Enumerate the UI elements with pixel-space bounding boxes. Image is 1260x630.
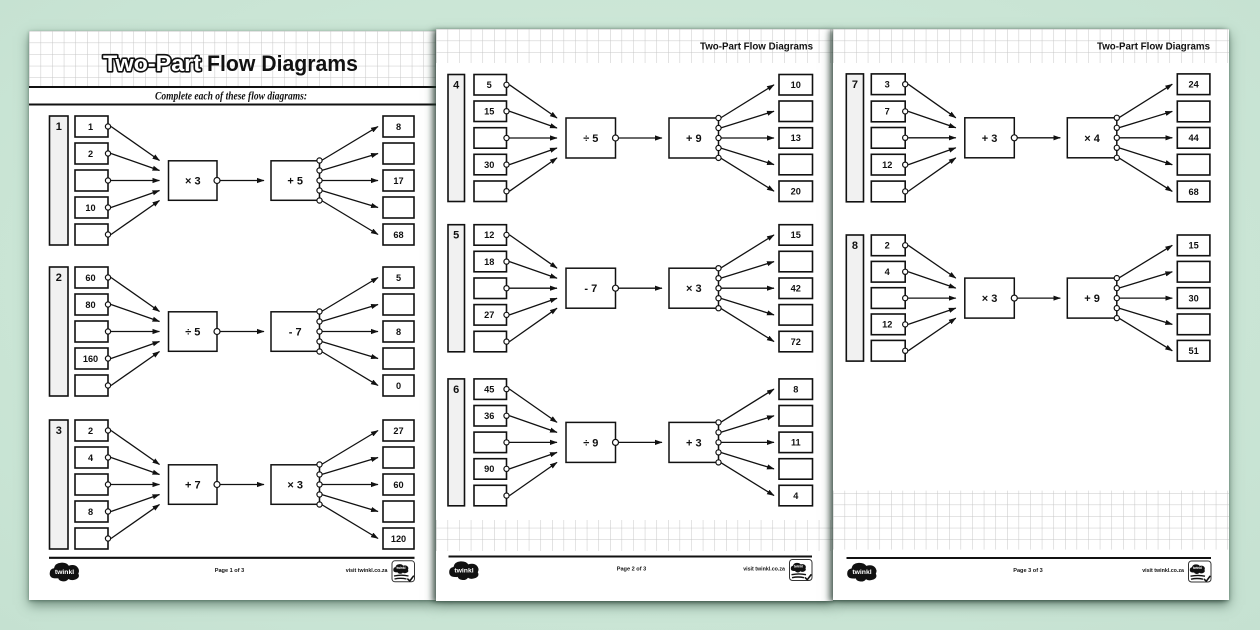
- svg-text:8: 8: [88, 507, 93, 517]
- svg-text:Two-Part Flow Diagrams: Two-Part Flow Diagrams: [700, 41, 813, 53]
- svg-text:twinkl: twinkl: [55, 569, 74, 576]
- svg-text:5: 5: [487, 80, 492, 90]
- svg-text:51: 51: [1188, 346, 1198, 356]
- svg-text:90: 90: [484, 464, 494, 474]
- svg-text:8: 8: [396, 327, 401, 337]
- svg-text:4: 4: [793, 491, 799, 501]
- svg-text:12: 12: [484, 230, 494, 240]
- svg-text:Flow Diagrams: Flow Diagrams: [207, 51, 358, 76]
- svg-text:11: 11: [791, 438, 801, 448]
- svg-text:24: 24: [1188, 80, 1199, 90]
- svg-text:visit twinkl.co.za: visit twinkl.co.za: [743, 567, 785, 573]
- svg-text:× 4: × 4: [1084, 133, 1100, 145]
- svg-text:17: 17: [393, 176, 403, 186]
- svg-text:2: 2: [88, 426, 93, 436]
- svg-text:15: 15: [1188, 241, 1198, 251]
- svg-text:+ 5: + 5: [287, 176, 303, 188]
- svg-text:80: 80: [85, 300, 95, 310]
- svg-text:8: 8: [793, 384, 798, 394]
- svg-text:× 3: × 3: [185, 176, 201, 188]
- svg-text:42: 42: [791, 284, 801, 294]
- svg-text:÷ 9: ÷ 9: [583, 437, 598, 449]
- svg-text:5: 5: [396, 273, 401, 283]
- svg-text:× 3: × 3: [287, 480, 303, 492]
- svg-text:twinkl: twinkl: [1193, 566, 1202, 570]
- svg-text:- 7: - 7: [584, 283, 597, 295]
- svg-text:12: 12: [882, 320, 892, 330]
- svg-text:Page 1 of 3: Page 1 of 3: [215, 568, 245, 574]
- svg-text:7: 7: [852, 79, 858, 91]
- svg-text:4: 4: [88, 453, 94, 463]
- svg-text:12: 12: [882, 160, 892, 170]
- svg-text:visit twinkl.co.za: visit twinkl.co.za: [1142, 568, 1184, 574]
- svg-text:8: 8: [852, 240, 858, 252]
- svg-text:120: 120: [391, 534, 406, 544]
- svg-text:+ 3: + 3: [982, 133, 998, 145]
- svg-text:60: 60: [393, 480, 403, 490]
- svg-text:30: 30: [484, 160, 494, 170]
- svg-text:Complete each of these flow di: Complete each of these flow diagrams:: [155, 91, 307, 103]
- svg-text:36: 36: [484, 411, 494, 421]
- svg-text:+ 7: + 7: [185, 480, 201, 492]
- svg-text:4: 4: [885, 267, 891, 277]
- svg-text:72: 72: [791, 337, 801, 347]
- svg-text:twinkl: twinkl: [396, 566, 405, 570]
- svg-text:6: 6: [453, 384, 459, 396]
- svg-text:45: 45: [484, 384, 494, 394]
- svg-text:Page 3 of 3: Page 3 of 3: [1013, 568, 1043, 574]
- svg-text:68: 68: [393, 230, 403, 240]
- svg-text:+ 3: + 3: [686, 437, 702, 449]
- svg-text:twinkl: twinkl: [794, 565, 803, 569]
- svg-text:44: 44: [1188, 133, 1199, 143]
- svg-text:+ 9: + 9: [1084, 293, 1100, 305]
- svg-text:5: 5: [453, 230, 459, 242]
- svg-text:- 7: - 7: [289, 327, 302, 339]
- svg-text:160: 160: [83, 354, 98, 364]
- svg-text:twinkl: twinkl: [454, 568, 473, 575]
- svg-text:2: 2: [56, 272, 62, 284]
- svg-text:10: 10: [85, 203, 95, 213]
- svg-text:15: 15: [791, 230, 801, 240]
- svg-text:+ 9: + 9: [686, 133, 702, 145]
- svg-text:twinkl: twinkl: [852, 569, 871, 576]
- svg-text:15: 15: [484, 107, 494, 117]
- svg-text:30: 30: [1188, 293, 1198, 303]
- svg-text:8: 8: [396, 122, 401, 132]
- svg-text:68: 68: [1188, 187, 1198, 197]
- svg-text:2: 2: [88, 149, 93, 159]
- svg-text:2: 2: [885, 241, 890, 251]
- svg-text:× 3: × 3: [982, 293, 998, 305]
- svg-text:27: 27: [393, 426, 403, 436]
- svg-text:20: 20: [791, 187, 801, 197]
- svg-text:3: 3: [56, 425, 62, 437]
- svg-text:60: 60: [85, 273, 95, 283]
- svg-text:Page 2 of 3: Page 2 of 3: [617, 567, 647, 573]
- svg-text:13: 13: [791, 133, 801, 143]
- svg-text:27: 27: [484, 310, 494, 320]
- svg-text:18: 18: [484, 257, 494, 267]
- svg-text:3: 3: [885, 80, 890, 90]
- svg-text:visit twinkl.co.za: visit twinkl.co.za: [346, 568, 388, 574]
- svg-text:× 3: × 3: [686, 283, 702, 295]
- svg-text:÷ 5: ÷ 5: [185, 327, 200, 339]
- svg-text:Two-Part Flow Diagrams: Two-Part Flow Diagrams: [1097, 41, 1210, 53]
- svg-text:÷ 5: ÷ 5: [583, 133, 598, 145]
- svg-text:7: 7: [885, 107, 890, 117]
- svg-text:4: 4: [453, 80, 460, 92]
- svg-text:1: 1: [88, 122, 93, 132]
- svg-text:Two-Part: Two-Part: [103, 51, 202, 76]
- svg-text:1: 1: [56, 121, 62, 133]
- svg-text:10: 10: [791, 80, 801, 90]
- svg-text:0: 0: [396, 381, 401, 391]
